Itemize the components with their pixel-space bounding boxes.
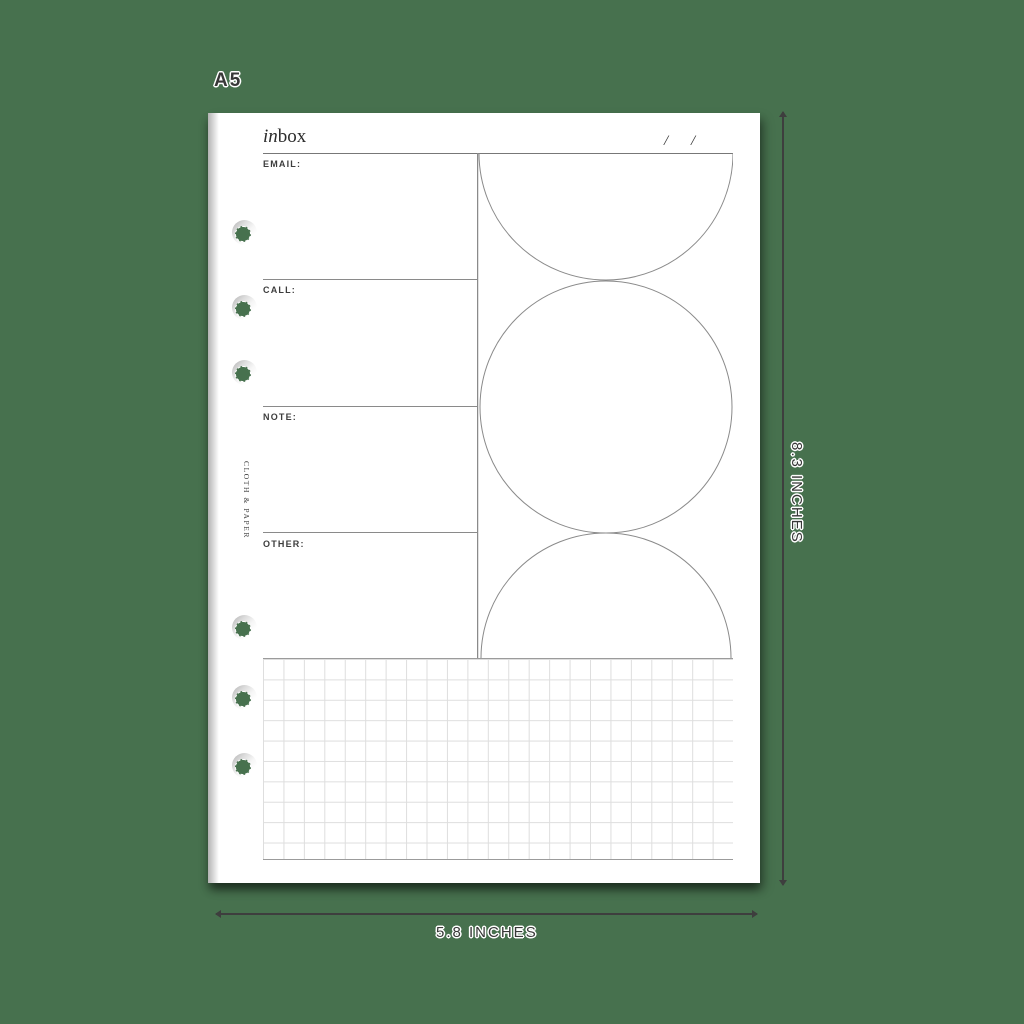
date-slash-2: /: [691, 133, 695, 150]
section-label-call: CALL:: [263, 285, 296, 295]
decorative-circles-panel: [477, 153, 733, 658]
height-dimension-label: 8.3 INCHES: [788, 442, 805, 582]
arrow-down-icon: [779, 880, 787, 886]
date-slash-1: /: [664, 133, 668, 150]
section-rule-call: [263, 279, 477, 280]
grid-notes-area: [263, 658, 733, 860]
arrow-left-icon: [215, 910, 221, 918]
width-dimension-line: [216, 913, 757, 915]
section-label-note: NOTE:: [263, 412, 297, 422]
punch-hole-4: [232, 615, 257, 640]
punch-hole-2-cutout: [235, 301, 251, 317]
punch-hole-2: [232, 295, 257, 320]
width-dimension-label: 5.8 INCHES: [436, 924, 538, 941]
page-title-italic: in: [263, 126, 278, 147]
punch-hole-6: [232, 753, 257, 778]
punch-hole-1-cutout: [235, 226, 251, 242]
product-mockup-stage: A5 inbox / / EMAIL: CALL: NOTE: OTHER: C…: [0, 0, 1024, 1024]
arrow-right-icon: [752, 910, 758, 918]
punch-hole-1: [232, 220, 257, 245]
punch-hole-3: [232, 360, 257, 385]
page-title: inbox: [263, 126, 306, 148]
punch-hole-4-cutout: [235, 621, 251, 637]
height-dimension-line: [782, 112, 784, 885]
planner-insert-page: inbox / / EMAIL: CALL: NOTE: OTHER: CLOT…: [208, 113, 760, 883]
top-semicircle: [479, 153, 733, 280]
brand-vertical-text: CLOTH & PAPER: [239, 461, 251, 537]
section-label-other: OTHER:: [263, 539, 305, 549]
section-rule-note: [263, 406, 477, 407]
page-left-shadow: [208, 113, 219, 883]
bottom-semicircle: [481, 533, 731, 658]
punch-hole-3-cutout: [235, 366, 251, 382]
arrow-up-icon: [779, 111, 787, 117]
section-label-email: EMAIL:: [263, 159, 301, 169]
section-rule-other: [263, 532, 477, 533]
paper-size-label: A5: [214, 70, 242, 92]
punch-hole-6-cutout: [235, 759, 251, 775]
page-title-regular: box: [278, 126, 307, 147]
punch-hole-5: [232, 685, 257, 710]
punch-hole-5-cutout: [235, 691, 251, 707]
middle-circle: [480, 281, 732, 533]
